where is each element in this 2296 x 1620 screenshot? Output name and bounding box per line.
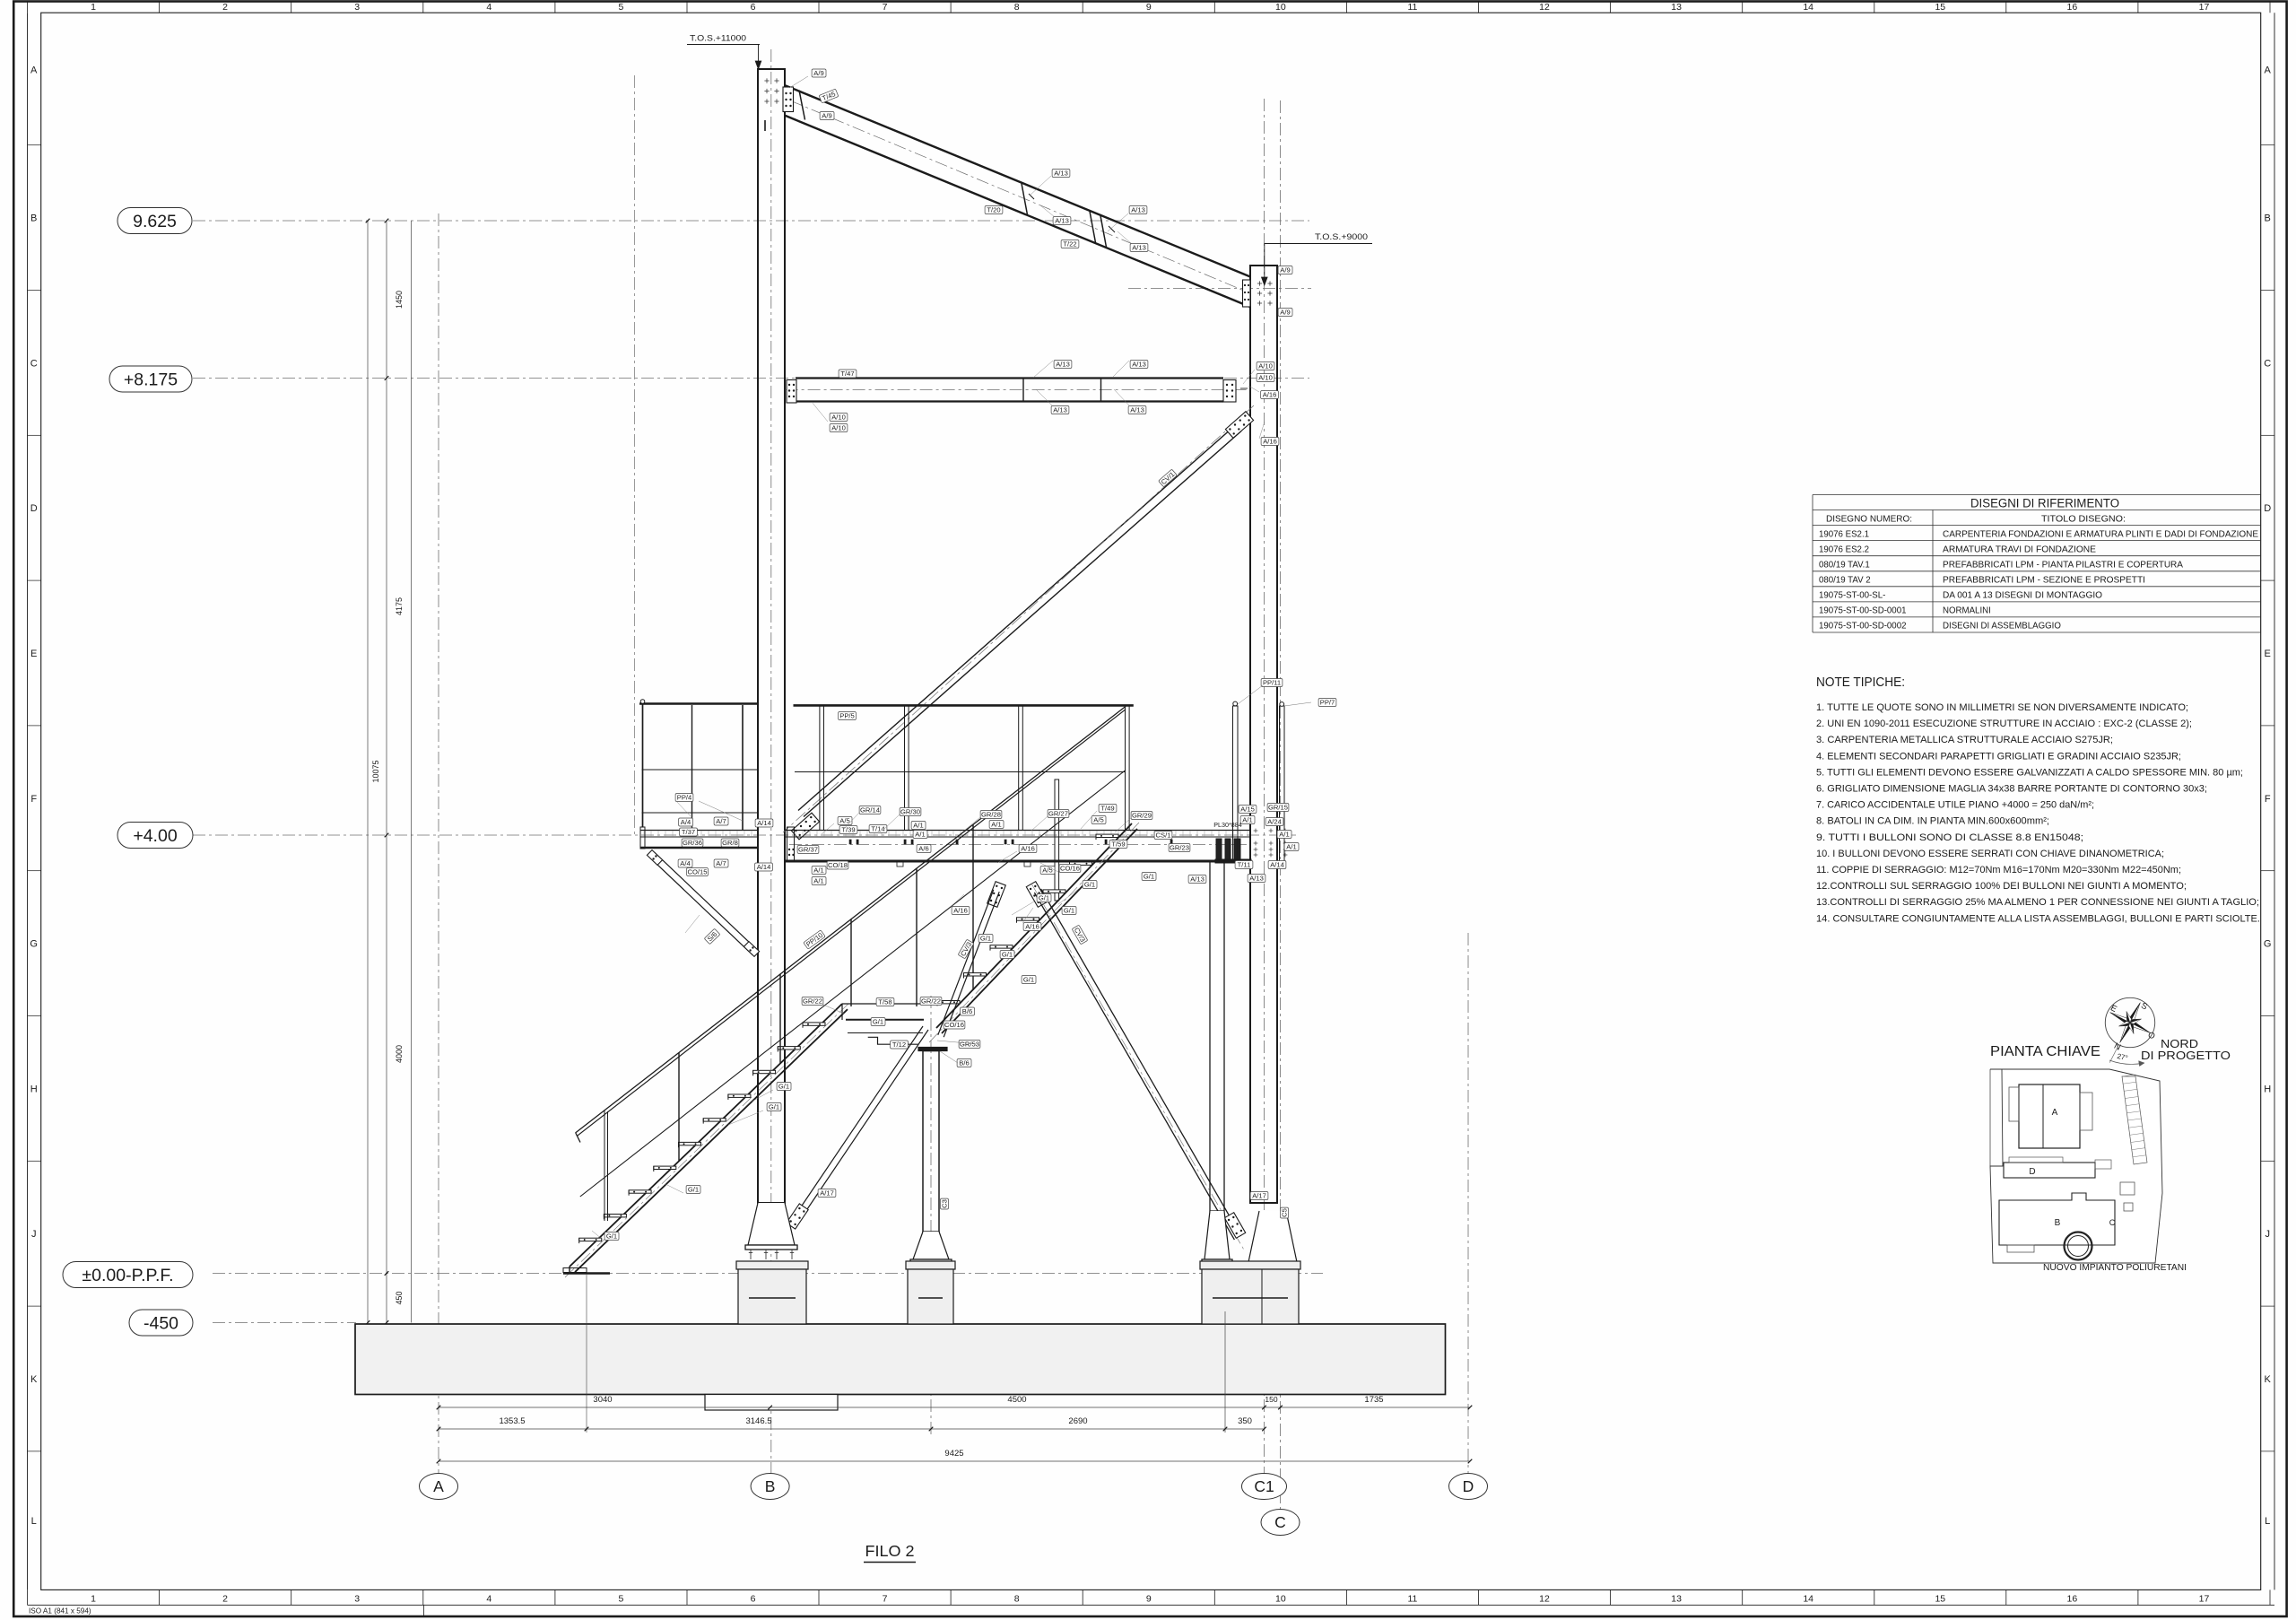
- svg-text:11: 11: [1407, 2, 1417, 13]
- svg-text:GR/15: GR/15: [1268, 804, 1288, 812]
- svg-text:GR/28: GR/28: [981, 811, 1001, 819]
- svg-text:G/1: G/1: [1002, 951, 1013, 959]
- svg-text:1735: 1735: [1364, 1395, 1383, 1405]
- svg-text:NOTE TIPICHE:: NOTE TIPICHE:: [1816, 675, 1905, 690]
- svg-text:GR/22: GR/22: [803, 997, 822, 1006]
- svg-text:19076 ES2.2: 19076 ES2.2: [1819, 544, 1869, 554]
- svg-text:A/10: A/10: [831, 424, 846, 432]
- svg-text:2: 2: [222, 1594, 228, 1605]
- svg-text:A/1: A/1: [915, 831, 925, 839]
- svg-text:G/1: G/1: [688, 1186, 699, 1194]
- svg-text:A: A: [2052, 1108, 2058, 1118]
- svg-text:J: J: [2265, 1229, 2270, 1240]
- svg-text:D: D: [2264, 503, 2271, 514]
- svg-text:F: F: [2265, 794, 2271, 805]
- svg-text:6. GRIGLIATO DIMENSIONE MAGLIA: 6. GRIGLIATO DIMENSIONE MAGLIA 34x38 BAR…: [1816, 784, 2207, 795]
- svg-text:TITOLO DISEGNO:: TITOLO DISEGNO:: [2041, 514, 2126, 524]
- svg-text:16: 16: [2067, 1594, 2078, 1605]
- svg-text:+8.175: +8.175: [124, 370, 178, 389]
- svg-text:+4.00: +4.00: [133, 826, 177, 846]
- svg-text:19075-ST-00-SD-0002: 19075-ST-00-SD-0002: [1819, 622, 1906, 631]
- svg-text:ISO A1 (841 x 594): ISO A1 (841 x 594): [29, 1607, 91, 1616]
- svg-text:16: 16: [2067, 2, 2078, 13]
- svg-text:G/1: G/1: [980, 935, 991, 943]
- svg-text:9425: 9425: [944, 1449, 963, 1459]
- svg-text:L: L: [2265, 1516, 2270, 1527]
- svg-text:A/16: A/16: [1021, 845, 1035, 853]
- svg-text:E: E: [30, 649, 37, 659]
- svg-text:G/1: G/1: [1084, 881, 1095, 889]
- svg-text:A/9: A/9: [1280, 309, 1290, 317]
- svg-text:FILO 2: FILO 2: [865, 1542, 915, 1560]
- svg-text:A/1: A/1: [913, 822, 923, 830]
- svg-text:DISEGNI DI RIFERIMENTO: DISEGNI DI RIFERIMENTO: [1970, 497, 2119, 510]
- svg-text:L: L: [31, 1516, 37, 1527]
- svg-text:T/12: T/12: [892, 1041, 906, 1049]
- svg-text:B: B: [2265, 213, 2271, 224]
- svg-text:C3: C3: [941, 1199, 949, 1208]
- svg-text:J: J: [31, 1229, 37, 1240]
- svg-text:G/1: G/1: [1023, 976, 1034, 984]
- svg-text:14. CONSULTARE CONGIUNTAMENTE: 14. CONSULTARE CONGIUNTAMENTE ALLA LISTA…: [1816, 913, 2260, 924]
- svg-text:C: C: [30, 358, 38, 369]
- svg-text:A/17: A/17: [820, 1189, 834, 1198]
- svg-text:A/13: A/13: [1132, 361, 1146, 369]
- svg-text:B: B: [2055, 1218, 2061, 1228]
- svg-text:4. ELEMENTI SECONDARI PARAPETT: 4. ELEMENTI SECONDARI PARAPETTI GRIGLIAT…: [1816, 751, 2181, 762]
- svg-text:DISEGNO NUMERO:: DISEGNO NUMERO:: [1826, 514, 1912, 524]
- svg-text:GR/36: GR/36: [683, 839, 702, 847]
- svg-text:GR/37: GR/37: [798, 846, 818, 854]
- svg-text:A/10: A/10: [1258, 374, 1273, 382]
- svg-text:D: D: [1463, 1477, 1474, 1495]
- svg-text:7: 7: [883, 2, 888, 13]
- svg-text:9: 9: [1146, 2, 1152, 13]
- svg-text:A/9: A/9: [822, 112, 831, 120]
- svg-text:150: 150: [1265, 1395, 1277, 1404]
- svg-text:10. I BULLONI DEVONO ESSERE SE: 10. I BULLONI DEVONO ESSERE SERRATI CON …: [1816, 849, 2164, 859]
- svg-text:G/1: G/1: [606, 1232, 617, 1241]
- svg-text:1: 1: [91, 1594, 96, 1605]
- svg-text:A/14: A/14: [1270, 861, 1284, 869]
- svg-text:A/10: A/10: [831, 414, 846, 422]
- svg-text:7. CARICO ACCIDENTALE UTILE PI: 7. CARICO ACCIDENTALE UTILE PIANO +4000 …: [1816, 800, 2094, 811]
- svg-text:15: 15: [1935, 2, 1945, 13]
- svg-text:GR/23: GR/23: [1170, 844, 1189, 852]
- svg-text:-450: -450: [143, 1313, 178, 1333]
- svg-text:9. TUTTI I BULLONI SONO DI CLA: 9. TUTTI I BULLONI SONO DI CLASSE 8.8 EN…: [1816, 832, 2083, 843]
- svg-text:A/9: A/9: [813, 69, 823, 77]
- svg-text:13.CONTROLLI DI SERRAGGIO 25%: 13.CONTROLLI DI SERRAGGIO 25% MA ALMENO …: [1816, 897, 2259, 908]
- svg-text:A/13: A/13: [1055, 217, 1069, 225]
- svg-text:19075-ST-00-SD-0001: 19075-ST-00-SD-0001: [1819, 606, 1906, 616]
- svg-text:T.O.S.+9000: T.O.S.+9000: [1315, 232, 1368, 241]
- svg-text:8: 8: [1014, 1594, 1020, 1605]
- svg-text:13: 13: [1671, 1594, 1682, 1605]
- svg-text:K: K: [30, 1374, 38, 1385]
- svg-text:T/59: T/59: [1111, 840, 1125, 849]
- svg-text:PREFABBRICATI LPM - SEZIONE E: PREFABBRICATI LPM - SEZIONE E PROSPETTI: [1943, 576, 2145, 586]
- svg-text:A: A: [30, 65, 38, 76]
- svg-text:8: 8: [1014, 2, 1020, 13]
- svg-text:G/1: G/1: [873, 1018, 883, 1026]
- svg-text:B/6: B/6: [962, 1007, 972, 1015]
- svg-text:A/4: A/4: [681, 818, 691, 826]
- svg-text:1. TUTTE LE QUOTE SONO IN MILL: 1. TUTTE LE QUOTE SONO IN MILLIMETRI SE …: [1816, 702, 2188, 713]
- svg-text:C5: C5: [1281, 1208, 1289, 1217]
- svg-text:4: 4: [486, 2, 491, 13]
- svg-text:14: 14: [1803, 2, 1813, 13]
- svg-text:T/47: T/47: [840, 370, 854, 378]
- svg-text:A/17: A/17: [1252, 1192, 1266, 1200]
- svg-text:±0.00-P.P.F.: ±0.00-P.P.F.: [82, 1266, 173, 1285]
- svg-text:19075-ST-00-SL-: 19075-ST-00-SL-: [1819, 591, 1885, 601]
- svg-text:A/1: A/1: [991, 821, 1001, 829]
- svg-text:CARPENTERIA FONDAZIONI E ARMAT: CARPENTERIA FONDAZIONI E ARMATURA PLINTI…: [1943, 529, 2259, 539]
- svg-text:B: B: [765, 1477, 776, 1495]
- svg-text:PP/7: PP/7: [1320, 699, 1335, 707]
- svg-text:12: 12: [1539, 1594, 1550, 1605]
- svg-text:T/39: T/39: [841, 826, 855, 834]
- svg-text:A/1: A/1: [1286, 843, 1296, 851]
- svg-text:2690: 2690: [1068, 1416, 1087, 1426]
- svg-text:3040: 3040: [593, 1395, 612, 1405]
- svg-text:T/20: T/20: [987, 206, 1000, 214]
- svg-text:5. TUTTI GLI ELEMENTI DEVONO E: 5. TUTTI GLI ELEMENTI DEVONO ESSERE GALV…: [1816, 767, 2243, 778]
- svg-text:CS/1: CS/1: [1156, 832, 1171, 840]
- svg-text:T/22: T/22: [1063, 240, 1076, 248]
- svg-text:9.625: 9.625: [133, 212, 177, 231]
- svg-text:H: H: [2264, 1084, 2271, 1094]
- svg-text:NUOVO IMPIANTO POLIURETANI: NUOVO IMPIANTO POLIURETANI: [2043, 1263, 2187, 1273]
- svg-text:12.CONTROLLI SUL SERRAGGIO 100: 12.CONTROLLI SUL SERRAGGIO 100% DEI BULL…: [1816, 881, 2187, 892]
- svg-text:F: F: [30, 794, 37, 805]
- svg-text:A/16: A/16: [1025, 923, 1039, 931]
- svg-text:T/11: T/11: [1238, 861, 1251, 869]
- svg-text:A/1: A/1: [813, 867, 823, 875]
- svg-text:CO/16: CO/16: [944, 1021, 964, 1029]
- svg-text:3: 3: [354, 2, 360, 13]
- svg-text:CO/15: CO/15: [688, 868, 708, 876]
- svg-text:A/1: A/1: [1279, 831, 1289, 839]
- svg-text:13: 13: [1671, 2, 1682, 13]
- svg-text:A/6: A/6: [918, 845, 928, 853]
- svg-text:DI PROGETTO: DI PROGETTO: [2141, 1049, 2231, 1062]
- svg-text:G/1: G/1: [1064, 907, 1074, 915]
- svg-text:8. BATOLI IN CA DIM. IN PIANTA: 8. BATOLI IN CA DIM. IN PIANTA MIN.600x6…: [1816, 816, 2049, 827]
- svg-text:A/13: A/13: [1130, 406, 1144, 414]
- svg-text:A/5: A/5: [1042, 867, 1052, 875]
- svg-text:A/13: A/13: [1053, 406, 1067, 414]
- svg-text:G/1: G/1: [1144, 873, 1154, 881]
- svg-text:PREFABBRICATI LPM - PIANTA PIL: PREFABBRICATI LPM - PIANTA PILASTRI E CO…: [1943, 560, 2184, 570]
- svg-text:PIANTA CHIAVE: PIANTA CHIAVE: [1990, 1044, 2100, 1059]
- svg-text:7: 7: [883, 1594, 888, 1605]
- svg-text:A/13: A/13: [1190, 875, 1205, 884]
- svg-text:11. COPPIE DI SERRAGGIO: M12=7: 11. COPPIE DI SERRAGGIO: M12=70Nm M16=17…: [1816, 865, 2181, 875]
- svg-text:5: 5: [618, 2, 623, 13]
- svg-text:H: H: [30, 1084, 38, 1094]
- svg-text:12: 12: [1539, 2, 1550, 13]
- svg-text:T/37: T/37: [682, 828, 695, 836]
- svg-text:350: 350: [1238, 1416, 1252, 1426]
- svg-text:K: K: [2265, 1374, 2272, 1385]
- svg-text:A/16: A/16: [1263, 438, 1277, 446]
- svg-text:T/58: T/58: [878, 998, 891, 1006]
- svg-text:080/19 TAV 2: 080/19 TAV 2: [1819, 576, 1871, 586]
- svg-text:T/14: T/14: [871, 825, 884, 833]
- svg-text:C: C: [2109, 1218, 2116, 1227]
- svg-text:14: 14: [1803, 1594, 1813, 1605]
- svg-text:A/14: A/14: [757, 819, 771, 827]
- svg-text:CO/18: CO/18: [828, 861, 848, 869]
- svg-text:ARMATURA TRAVI DI FONDAZIONE: ARMATURA TRAVI DI FONDAZIONE: [1943, 544, 2097, 554]
- svg-text:1: 1: [91, 2, 96, 13]
- svg-text:A/24: A/24: [1267, 818, 1282, 826]
- svg-text:A/13: A/13: [1131, 206, 1145, 214]
- svg-text:4500: 4500: [1007, 1395, 1026, 1405]
- svg-text:3: 3: [354, 1594, 360, 1605]
- svg-text:17: 17: [2199, 2, 2210, 13]
- svg-text:A/13: A/13: [1132, 244, 1146, 252]
- svg-text:3146.5: 3146.5: [745, 1416, 771, 1426]
- svg-text:A/16: A/16: [953, 907, 968, 915]
- svg-text:PP/5: PP/5: [839, 712, 854, 720]
- svg-text:17: 17: [2199, 1594, 2210, 1605]
- svg-text:D: D: [30, 503, 38, 514]
- svg-text:T/49: T/49: [1100, 805, 1114, 813]
- svg-text:9: 9: [1146, 1594, 1152, 1605]
- svg-text:A/1: A/1: [1242, 816, 1252, 824]
- svg-text:PL30*884: PL30*884: [1213, 821, 1242, 829]
- svg-text:4000: 4000: [395, 1045, 404, 1063]
- svg-text:A/7: A/7: [716, 817, 726, 825]
- svg-text:2. UNI EN 1090-2011 ESECUZIONE: 2. UNI EN 1090-2011 ESECUZIONE STRUTTURE…: [1816, 719, 2192, 729]
- svg-text:GR/8: GR/8: [722, 839, 738, 847]
- svg-text:T.O.S.+11000: T.O.S.+11000: [690, 34, 746, 43]
- svg-text:D: D: [2029, 1167, 2035, 1177]
- svg-text:2: 2: [222, 2, 228, 13]
- svg-text:PP/4: PP/4: [677, 794, 691, 802]
- svg-text:C1: C1: [1254, 1477, 1274, 1495]
- svg-text:4: 4: [486, 1594, 491, 1605]
- svg-text:A/9: A/9: [1280, 266, 1290, 274]
- svg-text:G: G: [2264, 939, 2272, 950]
- svg-text:A: A: [433, 1477, 444, 1495]
- svg-text:A/1: A/1: [813, 877, 823, 885]
- svg-text:10: 10: [1275, 1594, 1286, 1605]
- svg-text:1353.5: 1353.5: [499, 1416, 525, 1426]
- svg-text:G/1: G/1: [1039, 894, 1049, 902]
- svg-text:6: 6: [751, 2, 756, 13]
- svg-text:A: A: [2265, 65, 2272, 76]
- svg-text:NORMALINI: NORMALINI: [1943, 606, 1991, 616]
- svg-text:GR/14: GR/14: [860, 806, 880, 814]
- svg-text:DISEGNI DI ASSEMBLAGGIO: DISEGNI DI ASSEMBLAGGIO: [1943, 622, 2061, 631]
- svg-text:A/15: A/15: [1240, 806, 1255, 814]
- svg-text:A/13: A/13: [1056, 361, 1070, 369]
- svg-text:C: C: [1274, 1513, 1286, 1531]
- svg-text:A/10: A/10: [1258, 362, 1273, 370]
- svg-text:DA 001 A 13 DISEGNI DI MONTAGG: DA 001 A 13 DISEGNI DI MONTAGGIO: [1943, 591, 2102, 601]
- svg-text:19076 ES2.1: 19076 ES2.1: [1819, 529, 1869, 539]
- svg-text:GR/30: GR/30: [900, 808, 920, 816]
- svg-text:G/1: G/1: [778, 1083, 789, 1091]
- svg-text:10075: 10075: [371, 760, 380, 782]
- svg-text:5: 5: [618, 1594, 623, 1605]
- svg-text:G: G: [30, 939, 38, 950]
- svg-text:4175: 4175: [395, 597, 404, 615]
- svg-text:A/7: A/7: [716, 859, 726, 867]
- svg-text:080/19 TAV.1: 080/19 TAV.1: [1819, 560, 1870, 570]
- svg-text:GR/29: GR/29: [1132, 812, 1152, 820]
- svg-text:GR/53: GR/53: [960, 1041, 979, 1049]
- svg-text:A/13: A/13: [1054, 170, 1068, 178]
- svg-text:11: 11: [1407, 1594, 1417, 1605]
- svg-text:B: B: [30, 213, 37, 224]
- svg-text:A/14: A/14: [757, 863, 771, 871]
- svg-text:A/13: A/13: [1249, 875, 1264, 883]
- svg-text:C: C: [2264, 358, 2271, 369]
- svg-text:GR/22: GR/22: [921, 997, 941, 1006]
- svg-text:6: 6: [751, 1594, 756, 1605]
- svg-text:450: 450: [395, 1291, 404, 1304]
- svg-text:E: E: [2265, 649, 2271, 659]
- svg-text:A/16: A/16: [1263, 391, 1277, 399]
- svg-text:3. CARPENTERIA METALLICA STRUT: 3. CARPENTERIA METALLICA STRUTTURALE ACC…: [1816, 735, 2113, 745]
- svg-text:A/5: A/5: [1093, 816, 1103, 824]
- svg-text:15: 15: [1935, 1594, 1945, 1605]
- svg-text:B/6: B/6: [959, 1059, 969, 1067]
- svg-text:10: 10: [1275, 2, 1286, 13]
- svg-text:A/4: A/4: [680, 859, 690, 867]
- svg-text:G/1: G/1: [769, 1103, 779, 1111]
- svg-text:1450: 1450: [395, 291, 404, 309]
- svg-text:CO/16: CO/16: [1060, 865, 1080, 873]
- svg-text:PP/11: PP/11: [1263, 679, 1281, 687]
- svg-text:GR/27: GR/27: [1048, 810, 1068, 818]
